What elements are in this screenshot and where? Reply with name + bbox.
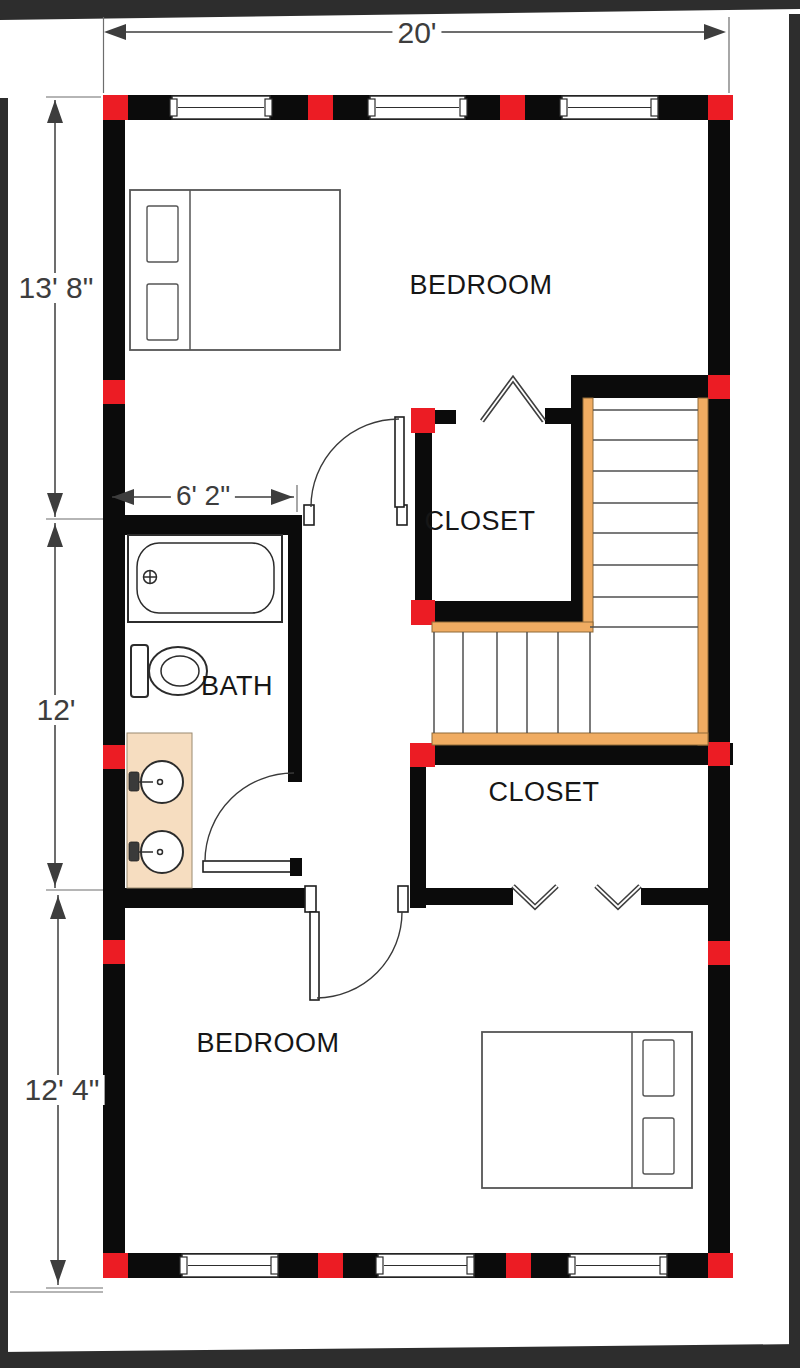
bed-top: [130, 190, 340, 350]
dimension-label-bedroom-top-height: 13' 8": [14, 273, 99, 303]
bedroom-top-door: [304, 417, 407, 525]
closet-top-bifold-door-symbol: [482, 379, 544, 421]
staircase: [432, 398, 708, 745]
room-label-bath: BATH: [201, 671, 273, 702]
toilet: [131, 645, 207, 697]
room-label-bedroom-top: BEDROOM: [409, 270, 552, 301]
bathtub: [128, 535, 282, 622]
tub-faucet-icon: [144, 571, 157, 584]
dimension-label-overall-width: 20': [392, 18, 441, 48]
bottom-wall-windows: [180, 1254, 667, 1277]
closet-bottom-bifold-door-symbols: [513, 886, 640, 907]
dimension-label-bedroom-bottom-height: 12' 4": [20, 1075, 105, 1105]
bedroom-bottom-door: [305, 886, 408, 1000]
stair-treads-upper-flight: [590, 410, 698, 627]
dimension-label-bath-height: 12': [31, 695, 80, 725]
stair-treads-lower-flight: [434, 632, 590, 733]
bath-door: [203, 773, 302, 876]
bed-bottom: [482, 1032, 692, 1188]
interior-walls: [103, 375, 733, 908]
room-label-closet-bottom: CLOSET: [488, 777, 599, 808]
double-vanity: [127, 733, 192, 888]
room-label-bedroom-bottom: BEDROOM: [196, 1028, 339, 1059]
room-label-closet-top: CLOSET: [424, 506, 535, 537]
floor-plan-drawing: [0, 0, 800, 1368]
dimension-label-bath-width: 6' 2": [171, 482, 235, 510]
dimension-bedroom-top-height: [46, 97, 103, 519]
top-wall-windows: [170, 96, 658, 119]
floor-plan-page: BEDROOM CLOSET BATH CLOSET BEDROOM 20' 1…: [0, 0, 800, 1368]
